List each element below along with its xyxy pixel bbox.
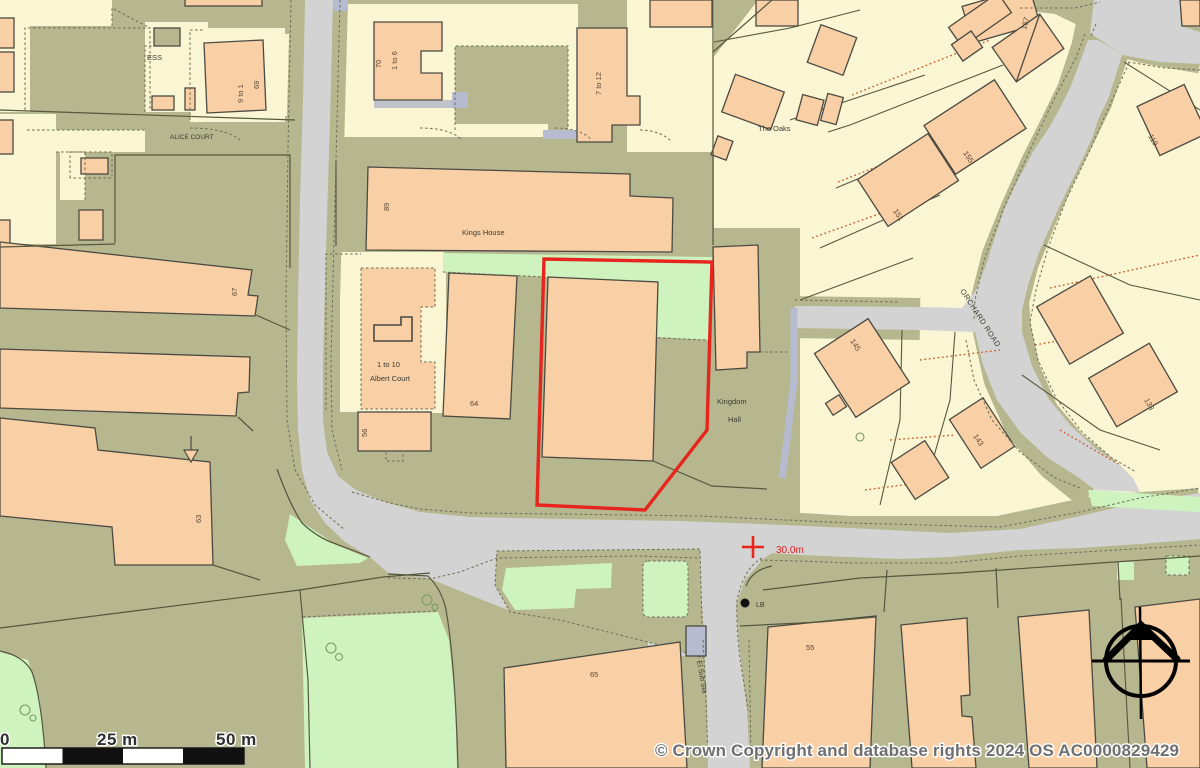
svg-text:0: 0 [0, 730, 10, 749]
svg-text:© Crown Copyright and database: © Crown Copyright and database rights 20… [655, 741, 1179, 760]
svg-text:Kingdom: Kingdom [717, 397, 747, 406]
svg-text:56: 56 [360, 429, 369, 437]
svg-text:69: 69 [252, 81, 261, 89]
svg-text:1 to 6: 1 to 6 [390, 51, 399, 70]
svg-text:70: 70 [374, 60, 383, 68]
svg-text:65: 65 [590, 670, 598, 679]
svg-text:89: 89 [382, 203, 391, 211]
svg-text:Hall: Hall [728, 415, 741, 424]
svg-text:55: 55 [806, 643, 814, 652]
svg-text:50 m: 50 m [216, 730, 257, 749]
svg-text:7 to 12: 7 to 12 [594, 72, 603, 95]
svg-text:The Oaks: The Oaks [758, 124, 791, 133]
svg-text:30.0m: 30.0m [776, 545, 804, 556]
svg-text:Albert Court: Albert Court [370, 374, 411, 383]
svg-text:67: 67 [230, 288, 239, 296]
svg-text:25 m: 25 m [97, 730, 138, 749]
svg-text:ALICE COURT: ALICE COURT [170, 134, 214, 141]
svg-text:LB: LB [756, 602, 765, 609]
svg-text:Kings House: Kings House [462, 228, 505, 237]
svg-text:64: 64 [470, 399, 478, 408]
svg-text:ESS: ESS [147, 53, 162, 62]
svg-text:63: 63 [194, 515, 203, 523]
svg-text:9 to 1: 9 to 1 [236, 84, 245, 103]
svg-text:1 to 10: 1 to 10 [377, 360, 400, 369]
